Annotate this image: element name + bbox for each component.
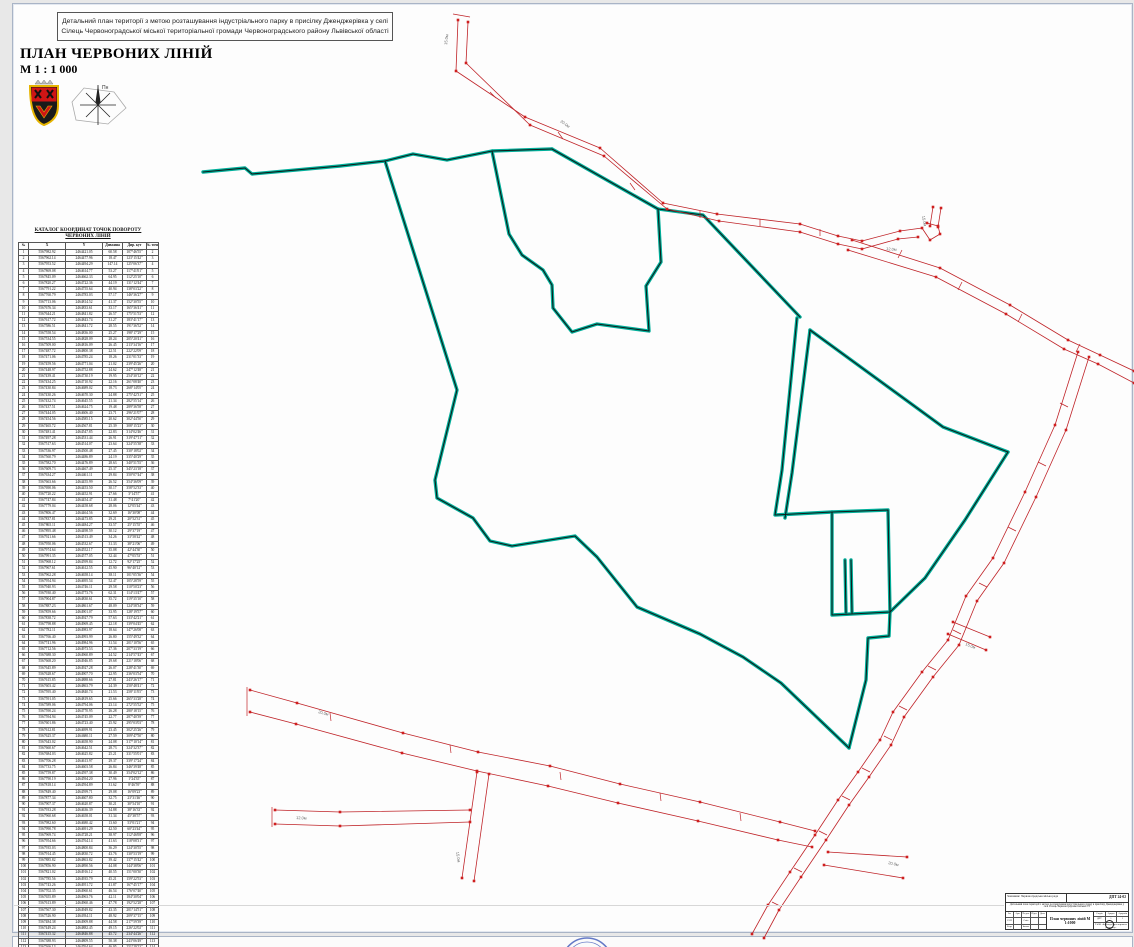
table-row: 955567969.742464728.2138.97112°46'08″96 <box>19 833 159 839</box>
table-row: 595567859.662464901.0733.95128°19'57″60 <box>19 609 159 615</box>
table-row: 855567759.872464597.3830.49354°02'12″86 <box>19 771 159 777</box>
table-row: 715567603.422464863.7924.39250°48'41″72 <box>19 684 159 690</box>
table-row: 525567967.612464612.5545.9096°40'12″53 <box>19 566 159 572</box>
table-row: 205567448.972464752.8824.62247°12'48″21 <box>19 367 159 373</box>
table-row: 575567904.872464830.6135.72119°35'10″58 <box>19 597 159 603</box>
table-row: 95567713.062464814.5241.37152°30'55″10 <box>19 299 159 305</box>
table-row: 915567933.282464636.3934.8838°16'33″92 <box>19 808 159 814</box>
svg-text:20.0м: 20.0м <box>318 709 330 717</box>
project-title-line1: Детальний план території з метою розташу… <box>61 17 389 26</box>
table-row: 235567430.842464689.0218.73268°14'05″24 <box>19 386 159 392</box>
table-row: 675567668.202464946.8529.68221°18'06″68 <box>19 659 159 665</box>
table-row: 515567968.122464599.8412.7292°17'25″52 <box>19 560 159 566</box>
coordinates-table: №XYДовжинаДир. кут№ точки 15567982.92246… <box>18 242 159 947</box>
table-row: 145567558.542464836.0025.27198°17'29″15 <box>19 330 159 336</box>
table-row: 605567838.722464927.7957.63133°42'21″61 <box>19 615 159 621</box>
table-row: 1105567449.242464882.4549.15226°22'02″11… <box>19 926 159 932</box>
table-row: 215567439.412464730.1919.95254°30'12″22 <box>19 374 159 380</box>
svg-text:15.0м: 15.0м <box>965 641 977 650</box>
table-row: 995567885.822464863.8239.42137°15'42″100 <box>19 857 159 863</box>
table-row: 535567962.282464658.1438.11101°05'36″54 <box>19 572 159 578</box>
table-row: 355567582.702464476.8928.63340°51'55″36 <box>19 460 159 466</box>
table-row: 85567760.792464783.0357.17146°36'27″9 <box>19 293 159 299</box>
frame-bottom-line <box>14 905 1004 906</box>
table-row: 1015567821.022464916.1240.55151°00'30″10… <box>19 870 159 876</box>
table-row: 805567643.022464658.9024.08317°10'14″81 <box>19 740 159 746</box>
catalog-title: КАТАЛОГ КООРДИНАТ ТОЧОК ПОВОРОТУ ЧЕРВОНИ… <box>18 228 158 240</box>
table-row: 495567974.642464552.1735.0842°44'30″50 <box>19 547 159 553</box>
table-row: 155567534.552464828.0928.24205°20'41″16 <box>19 336 159 342</box>
table-row: 265567437.512464624.7519.48289°36'58″27 <box>19 405 159 411</box>
table-row: 1065567613.892464960.4647.78192°52'28″10… <box>19 901 159 907</box>
table-row: 705567615.852464888.6627.81243°26'17″71 <box>19 678 159 684</box>
table-row: 585567887.232464861.6748.09124°58'34″59 <box>19 603 159 609</box>
north-label: Пн <box>102 85 109 91</box>
table-row: 935567982.602464680.4213.6053°01'21″94 <box>19 820 159 826</box>
table-row: 175567487.722464800.3822.51222°22'09″18 <box>19 349 159 355</box>
table-row: 885567849.402464599.7129.0816°09'23″89 <box>19 789 159 795</box>
plan-map: 15.0м20.0м15.0м12.0м15.0м20.0м12.0м15.0м… <box>0 0 1134 947</box>
table-row: 315567497.282464531.4426.91319°47'11″32 <box>19 436 159 442</box>
table-header-row: №XYДовжинаДир. кут№ точки <box>19 243 159 250</box>
table-row: 345567560.792464486.8924.19335°40'29″35 <box>19 454 159 460</box>
table-row: 825567684.032464625.8225.21331°55'01″83 <box>19 752 159 758</box>
table-row: 1025567785.562464935.7945.21159°22'53″10… <box>19 876 159 882</box>
table-row: 125567617.722464843.7431.27183°41'17″13 <box>19 318 159 324</box>
sheets-value: 1 <box>1117 917 1128 922</box>
table-row: 1115567415.322464846.8845.72234°44'26″11… <box>19 932 159 938</box>
table-row: 865567790.192464594.2027.961°24'35″87 <box>19 777 159 783</box>
table-row: 475567921.662464513.4934.2633°58'42″48 <box>19 535 159 541</box>
table-row: 685567645.892464927.2826.07228°41'30″69 <box>19 665 159 671</box>
table-row: 385567663.662464455.9926.52354°36'09″39 <box>19 479 159 485</box>
table-row: 25567962.142464477.9618.47123°15'42″3 <box>19 256 159 262</box>
table-row: 185567471.062464785.2418.26231°01'33″19 <box>19 355 159 361</box>
svg-text:15.0м: 15.0м <box>921 215 928 226</box>
table-row: 875567818.142464594.8931.628°46'59″88 <box>19 783 159 789</box>
table-row: 795567625.372464680.1127.59309°47'50″80 <box>19 733 159 739</box>
object-description: Детальний план території з метою розташу… <box>1006 903 1128 912</box>
table-row: 565567930.402464773.7662.31114°13'47″57 <box>19 591 159 597</box>
table-row: 835567706.282464613.9729.37339°17'24″84 <box>19 758 159 764</box>
page-title: ПЛАН ЧЕРВОНИХ ЛІНІЙ <box>20 46 213 63</box>
scale-label: М 1 : 1 000 <box>20 62 77 77</box>
table-row: 765567594.942464745.0922.77287°40'39″77 <box>19 715 159 721</box>
stage-value: ДПТ <box>1094 917 1106 922</box>
table-row: 655567712.562464973.5327.36207°33'19″66 <box>19 647 159 653</box>
table-row: 35567953.522464494.29147.14125°06'37″4 <box>19 262 159 268</box>
table-row: 285567454.562464585.1520.62302°44'50″29 <box>19 417 159 423</box>
svg-text:12.0м: 12.0м <box>296 815 307 821</box>
table-row: 695567628.672464907.7022.95236°03'54″70 <box>19 671 159 677</box>
svg-text:20.0м: 20.0м <box>888 860 900 867</box>
table-row: 1095567484.382464909.8844.58217°59'39″11… <box>19 919 159 925</box>
table-row: 75567791.222464755.6440.94138°03'22″8 <box>19 287 159 293</box>
table-row: 195567459.562464771.0421.02239°45'26″20 <box>19 361 159 367</box>
table-row: 725567595.402464840.7421.53258°11'05″73 <box>19 690 159 696</box>
table-row: 625567782.112464983.9718.64147°26'08″63 <box>19 628 159 634</box>
client-cell: Замовник: Червоноградська міська рада <box>1006 894 1067 902</box>
table-row: 775567601.862464723.4025.92295°03'03″78 <box>19 721 159 727</box>
table-row: 635567766.402464993.9926.80155°49'32″64 <box>19 634 159 640</box>
document-viewer: 15.0м20.0м15.0м12.0м15.0м20.0м12.0м15.0м… <box>0 0 1134 947</box>
table-row: 945567990.782464691.2942.5060°23'44″95 <box>19 826 159 832</box>
table-row: 905567907.372464620.8730.2130°54'10″91 <box>19 802 159 808</box>
table-row: 645567741.962464984.9631.54201°10'56″65 <box>19 640 159 646</box>
table-row: 965567954.662464764.1441.63118°08'31″97 <box>19 839 159 845</box>
table-row: 1125567388.932464809.5550.38243°06'49″11… <box>19 938 159 944</box>
table-row: 485567950.062464532.6731.3338°21'06″49 <box>19 541 159 547</box>
table-row: 365567609.732464467.4925.37345°23'18″37 <box>19 467 159 473</box>
table-row: 55567845.092464662.3364.95112°25'10″6 <box>19 274 159 280</box>
sheet-title: План червоних ліній М 1:1000 <box>1047 912 1094 930</box>
table-row: 165567509.002464816.0926.45213°34'16″17 <box>19 343 159 349</box>
svg-text:20.0м: 20.0м <box>559 119 571 129</box>
table-row: 445567837.812464473.8529.2120°52'31″45 <box>19 516 159 522</box>
table-row: 975567935.032464800.8436.29124°30'55″98 <box>19 845 159 851</box>
svg-text:15.0м: 15.0м <box>443 34 449 45</box>
table-row: 665567688.302464960.8924.52214°57'43″67 <box>19 653 159 659</box>
table-row: 895567877.342464607.8032.7523°31'46″90 <box>19 795 159 801</box>
table-row: 465567895.482464498.5930.1229°37'19″47 <box>19 529 159 535</box>
table-row: 505567991.352464577.0532.4447°05'53″51 <box>19 553 159 559</box>
table-row: 65567820.272464722.3644.19131°12'44″7 <box>19 281 159 287</box>
svg-text:15.0м: 15.0м <box>455 851 462 862</box>
table-row: 1045567702.352464960.6146.54176°07'40″10… <box>19 888 159 894</box>
table-row: 815567660.672464642.5128.73324°32'37″82 <box>19 746 159 752</box>
table-row: 1075567567.302464949.8243.35201°14'51″10… <box>19 907 159 913</box>
table-row: 45567869.082464614.7753.27117°41'01″5 <box>19 268 159 274</box>
table-row: 845567733.752464603.5826.84346°39'48″85 <box>19 764 159 770</box>
table-row: 135567586.512464841.7228.55191°36'52″14 <box>19 324 159 330</box>
table-row: 305567481.412464547.8522.83314°02'46″31 <box>19 429 159 435</box>
stamp-circle-icon <box>1105 920 1114 929</box>
table-row: 425567779.042464458.6828.0612°05'44″43 <box>19 504 159 510</box>
table-row: 1005567856.902464890.5644.08144°38'06″10… <box>19 864 159 870</box>
table-row: 555567940.932464746.1129.58110°50'23″56 <box>19 584 159 590</box>
table-row: 785567612.812464699.9123.45302°25'26″79 <box>19 727 159 733</box>
table-row: 335567536.972464500.4827.45330°18'02″34 <box>19 448 159 454</box>
table-row: 1035567743.262464951.7241.87167°45'17″10… <box>19 882 159 888</box>
table-row: 745567589.062464794.0623.14272°55'52″75 <box>19 702 159 708</box>
table-row: 415567747.842464454.4731.487°41'20″42 <box>19 498 159 504</box>
table-row: 245567430.262464670.3024.88275°42'31″25 <box>19 392 159 398</box>
table-row: 105567676.342464833.6133.17165°36'41″11 <box>19 305 159 311</box>
north-arrow-icon: Пн <box>64 80 130 130</box>
table-row: 435567806.472464464.5632.6916°30'08″44 <box>19 510 159 516</box>
table-row: 985567914.452464830.7243.76130°53'19″99 <box>19 851 159 857</box>
table-row: 615567798.882464969.4522.18139°04'45″62 <box>19 622 159 628</box>
table-row: 1055567655.892464963.7642.11184°30'04″10… <box>19 895 159 901</box>
doc-number: ДПТ 24-02 <box>1067 894 1128 902</box>
table-row: 275567444.052464606.4023.71296°21'07″28 <box>19 411 159 417</box>
svg-text:12.0м: 12.0м <box>886 246 897 252</box>
project-title-box: Детальний план території з метою розташу… <box>57 12 393 41</box>
signatures-grid: Зм.Арк.№ док.Підп.ДатаГАПСміхРозр.Іваньо <box>1006 912 1047 930</box>
table-row: 295567465.722464567.8125.39308°15'23″30 <box>19 423 159 429</box>
table-row: 395567690.062464453.5030.17358°52'33″40 <box>19 485 159 491</box>
table-row: 405567720.222464452.9127.663°14'57″41 <box>19 491 159 497</box>
table-row: 375567634.272464461.1129.84350°07'44″38 <box>19 473 159 479</box>
title-block: Замовник: Червоноградська міська рада ДП… <box>1005 893 1129 930</box>
table-row: 1085567526.902464934.1148.92209°37'15″10… <box>19 913 159 919</box>
table-row: 735567591.052464819.6525.66265°33'28″74 <box>19 696 159 702</box>
table-row: 455567865.112464484.2733.5725°15'55″46 <box>19 522 159 528</box>
project-title-line2: Сілець Червоноградської міської територі… <box>61 27 389 36</box>
table-row: 115567644.212464841.8226.57175°51'53″12 <box>19 312 159 318</box>
table-row: 545567954.942464695.5452.47105°28'59″55 <box>19 578 159 584</box>
table-row: 925567960.682464658.0131.3445°38'57″93 <box>19 814 159 820</box>
table-row: 255567432.742464645.5521.34282°55'14″26 <box>19 398 159 404</box>
table-row: 325567517.632464514.0723.64324°55'38″33 <box>19 442 159 448</box>
table-row: 755567590.242464770.9526.28280°18'15″76 <box>19 709 159 715</box>
table-row: 225567434.252464710.9222.16261°08'40″23 <box>19 380 159 386</box>
coat-of-arms-icon <box>24 78 64 130</box>
table-row: 15567982.922464421.0560.58107°46'55″2 <box>19 250 159 256</box>
